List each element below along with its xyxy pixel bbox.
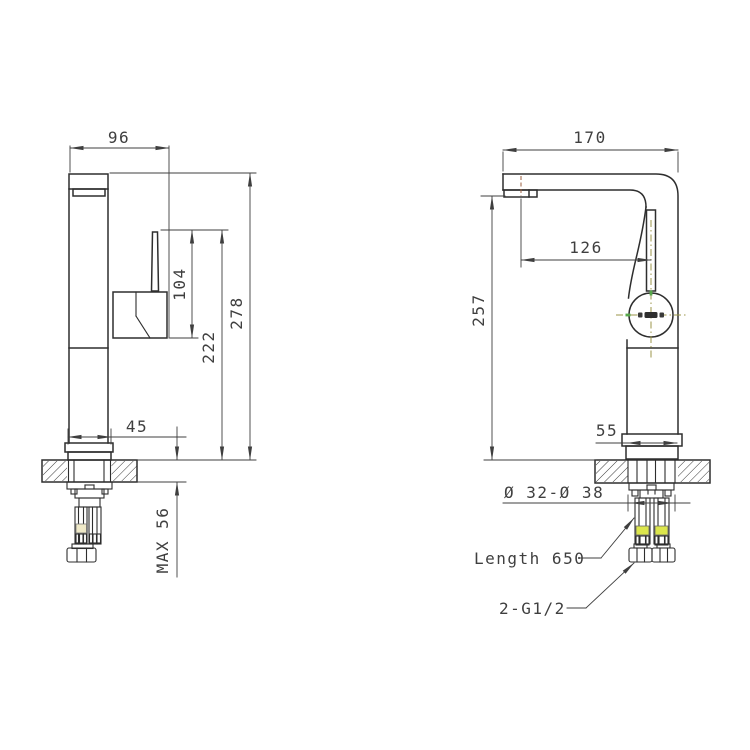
hose-length-label: Length 650	[474, 549, 585, 568]
hose-nut-front	[67, 548, 96, 562]
brand-mark	[638, 312, 664, 318]
dim-278-label: 278	[227, 296, 246, 329]
through-hole-front	[69, 460, 111, 482]
countertop-hatch-left	[43, 461, 67, 481]
mounting-bracket-side	[629, 483, 674, 490]
faucet-body-front	[42, 174, 167, 482]
hose-highlight-front	[76, 524, 87, 533]
dim-257-label: 257	[469, 293, 488, 326]
green-tick-left	[626, 314, 631, 317]
hose-highlight-side-right	[655, 526, 668, 535]
supply-hose-side-left	[635, 498, 650, 544]
handle-block-front	[113, 292, 167, 338]
hose-nut-side-left	[629, 548, 652, 562]
dim-222-label: 222	[199, 330, 218, 363]
handle-lever-front	[152, 232, 159, 291]
base-collar-side	[626, 446, 678, 459]
supply-hose-side-right	[654, 498, 669, 544]
dim-104-label: 104	[170, 267, 189, 300]
dim-170-label: 170	[573, 128, 606, 147]
thread-leader	[586, 563, 634, 608]
handle-block-detail-front	[136, 292, 150, 338]
countertop-hatch-right	[112, 461, 137, 481]
hose-nut-side-right	[652, 548, 675, 562]
spout-head-front	[69, 174, 108, 189]
side-view: 170 126 257 55 Ø 32-Ø 38 Length 650 2-G1…	[469, 128, 710, 618]
under-counter-hardware-front	[67, 482, 112, 562]
neck-curve-side	[629, 207, 647, 298]
thread-label: 2-G1/2	[499, 599, 566, 618]
dim-126-label: 126	[569, 238, 602, 257]
through-hole-side	[628, 460, 675, 483]
supply-hose-front-right	[89, 507, 101, 544]
base-flange-front	[65, 443, 113, 452]
dim-max56-label: MAX 56	[153, 507, 172, 574]
hose-highlight-side-left	[636, 526, 649, 535]
countertop-hatch-side-right	[678, 461, 709, 482]
dim-45-label: 45	[126, 417, 148, 436]
dim-96-label: 96	[108, 128, 130, 147]
dim-55-label: 55	[596, 421, 618, 440]
dim-hole-label: Ø 32-Ø 38	[504, 483, 604, 502]
front-view: 96 104 222 278 45 MAX 56	[42, 128, 256, 577]
spout-head-step-front	[73, 189, 105, 196]
under-counter-hardware-side	[629, 483, 675, 562]
faucet-dimension-drawing: 96 104 222 278 45 MAX 56	[0, 0, 750, 750]
base-collar-front	[68, 452, 111, 460]
green-tick-top	[650, 291, 653, 296]
base-flange-side	[622, 434, 682, 446]
countertop-hatch-side-left	[596, 461, 628, 482]
shank-side	[640, 490, 663, 498]
shank-front	[75, 489, 104, 498]
technical-drawing-canvas: 96 104 222 278 45 MAX 56	[0, 0, 750, 750]
